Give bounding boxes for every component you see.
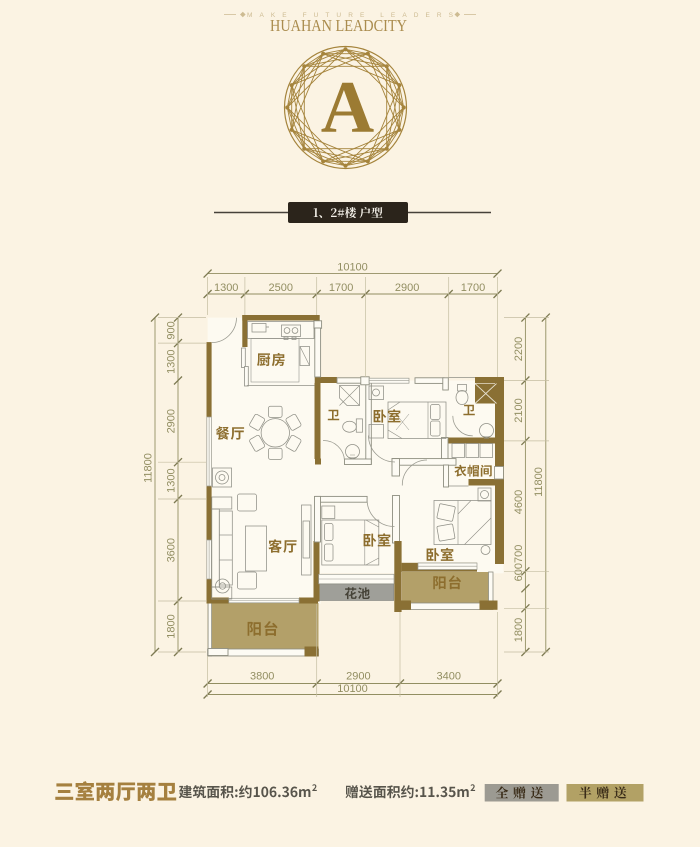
svg-text:2900: 2900 (166, 409, 178, 433)
svg-text:2100: 2100 (513, 398, 525, 422)
svg-text:1700: 1700 (329, 282, 353, 294)
svg-text:3400: 3400 (437, 671, 461, 683)
svg-text:1800: 1800 (166, 614, 178, 638)
svg-text:2900: 2900 (346, 671, 370, 683)
svg-text:900: 900 (166, 321, 178, 339)
svg-text:3800: 3800 (250, 671, 274, 683)
svg-text:1300: 1300 (166, 468, 178, 492)
svg-text:4600: 4600 (513, 490, 525, 514)
svg-text:600700: 600700 (513, 545, 525, 582)
svg-text:1700: 1700 (461, 282, 485, 294)
svg-text:2200: 2200 (513, 337, 525, 361)
svg-text:10100: 10100 (337, 262, 368, 274)
svg-text:10100: 10100 (337, 683, 368, 695)
svg-text:3600: 3600 (166, 538, 178, 562)
svg-text:1800: 1800 (513, 618, 525, 642)
svg-text:11800: 11800 (143, 453, 155, 483)
svg-text:A: A (321, 67, 374, 149)
svg-text:1300: 1300 (166, 349, 178, 373)
svg-text:2500: 2500 (269, 282, 293, 294)
svg-text:11800: 11800 (533, 467, 545, 497)
svg-text:1300: 1300 (214, 282, 238, 294)
svg-text:2900: 2900 (395, 282, 419, 294)
